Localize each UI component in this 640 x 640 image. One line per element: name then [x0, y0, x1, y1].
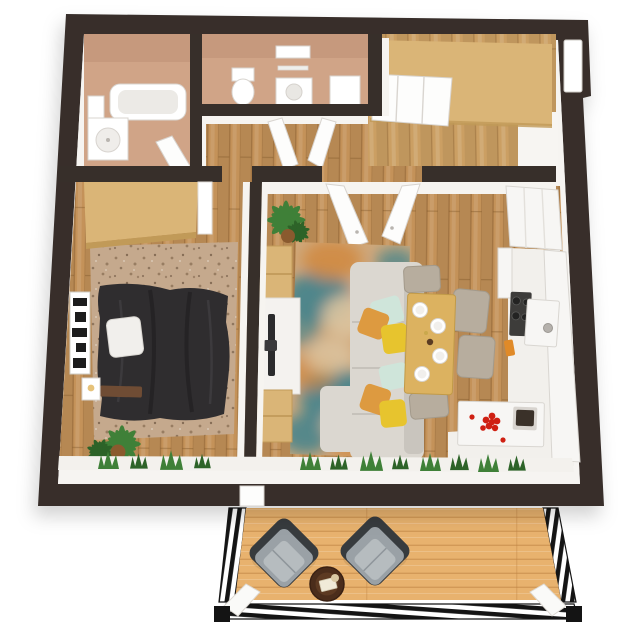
- bed: [98, 284, 230, 421]
- living-doorway: [322, 166, 422, 182]
- wc-bottom-wall: [202, 104, 368, 116]
- bedside-lamp: [88, 385, 95, 392]
- cup: [331, 574, 339, 582]
- balcony-door-opening: [240, 486, 264, 506]
- sink-drain: [106, 138, 110, 142]
- bath-wc-wall: [190, 34, 202, 182]
- balcony-round-table: [310, 567, 344, 601]
- main-wall-mid: [252, 166, 322, 182]
- tray-dish: [516, 410, 535, 427]
- tv-stand: [264, 340, 277, 351]
- bed-bench: [100, 385, 142, 397]
- balcony: [214, 508, 582, 622]
- oven: [524, 299, 559, 347]
- bathtub-basin: [118, 90, 178, 114]
- wall-niche: [564, 40, 582, 92]
- toilet-bowl: [232, 79, 254, 105]
- towel-bar: [278, 66, 308, 70]
- plant-pot: [281, 229, 295, 243]
- door-handle: [390, 226, 394, 230]
- wc-cabinet: [330, 76, 360, 106]
- bedroom-doorway: [222, 166, 252, 182]
- kitchen-upper-cabinets: [506, 186, 562, 250]
- bathroom-shelf: [88, 96, 104, 120]
- tall-cabinet: [498, 248, 512, 298]
- bedroom: [59, 182, 250, 469]
- wc-entry-wall: [368, 34, 382, 116]
- balcony-post-left: [214, 606, 230, 622]
- oven-handle: [544, 324, 553, 333]
- wc-sink: [286, 84, 302, 100]
- balcony-railing-front: [222, 604, 578, 619]
- bathroom: [84, 34, 190, 182]
- dining-chair-right-2: [457, 335, 496, 379]
- apartment-floor-plan: [0, 0, 640, 640]
- main-wall-right: [422, 166, 556, 182]
- bed-pillow: [106, 316, 144, 358]
- kitchen-island: [458, 401, 545, 446]
- floor-plan-image: [0, 0, 640, 640]
- bathroom-wall-shade: [84, 34, 190, 62]
- burner: [512, 297, 520, 305]
- wall-face: [382, 38, 389, 116]
- burner: [512, 312, 520, 320]
- table-decor: [424, 331, 428, 335]
- balcony-post-right: [566, 606, 582, 622]
- wardrobe-shelf: [198, 182, 212, 234]
- apartment-body: [38, 14, 604, 506]
- dining-chair-top: [403, 265, 440, 293]
- main-wall-left: [58, 166, 222, 182]
- wall-face: [202, 116, 368, 124]
- dining-chair-right-1: [450, 288, 490, 334]
- table-decor: [427, 339, 433, 345]
- door-handle: [355, 230, 359, 234]
- entry-closet: [368, 34, 558, 182]
- toilet-room: [202, 34, 368, 106]
- wc-mirror-shelf: [276, 46, 310, 58]
